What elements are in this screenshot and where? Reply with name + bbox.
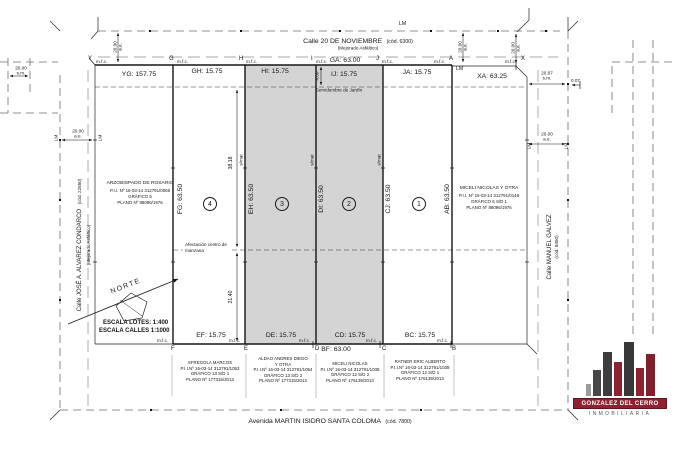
dim-cd: CD: 15.75 <box>335 332 366 340</box>
dim-de: DE: 15.75 <box>266 332 296 340</box>
dim-di: DI: 63.50 <box>318 185 326 213</box>
point-marker-d: m.f.c. <box>299 338 310 343</box>
parcel-south-4-info: RATNER ERIC ALBERTO P.I.I.Nº 16-03-14 31… <box>391 359 450 381</box>
point-marker-i: m.f.c. <box>316 59 327 64</box>
point-e: E <box>244 346 248 353</box>
point-marker-h: m.f.c. <box>246 59 257 64</box>
lot-circle-2: 2 <box>342 197 356 211</box>
afectacion-note-line1: Afectación centro de <box>185 242 227 247</box>
parcel-south-2-info: ALDAO ANDRES DIEGO Y OTRA P.I.I.Nº 16-03… <box>254 356 313 384</box>
logo-building-bar <box>624 342 634 396</box>
point-b: B <box>452 346 456 353</box>
lot-circle-4: 4 <box>203 197 217 211</box>
dim-bf: BF: 63.00 <box>321 346 350 354</box>
logo-building-bar <box>646 354 655 396</box>
logo-building-bar <box>614 362 622 396</box>
point-x: X <box>521 56 525 63</box>
point-j: J <box>376 56 379 63</box>
point-i: I <box>311 56 313 63</box>
point-marker-j: m.f.c. <box>382 59 393 64</box>
point-marker-y: m.f.c. <box>96 59 107 64</box>
dim-ab: AB: 63.50 <box>444 184 452 214</box>
logo-building-bar <box>586 384 591 396</box>
point-marker-b: m.f.c. <box>437 338 448 343</box>
point-marker-c: m.f.c. <box>366 338 377 343</box>
company-logo: GONZALEZ DEL CERRO INMOBILIARIA <box>573 342 667 417</box>
smat-note-cj: s/mat <box>376 154 381 165</box>
dim-gh: GH: 15.75 <box>192 68 223 76</box>
logo-buildings-icon <box>573 342 667 396</box>
logo-subtitle: INMOBILIARIA <box>573 411 667 417</box>
lm-label-left-outer: LM <box>53 135 58 141</box>
lm-label-right-inner: LM <box>526 143 531 149</box>
dim-ef: EF: 15.75 <box>196 332 225 340</box>
dim-servidumbre-depth: 4.00 <box>314 72 319 81</box>
dim-xa: XA: 63.25 <box>477 73 507 81</box>
dim-inner-lower: 21.40 <box>229 291 235 304</box>
lm-label-left-inner: LM <box>97 135 102 141</box>
logo-building-bar <box>593 370 601 396</box>
dim-ga: GA: 63.00 <box>330 57 361 65</box>
point-a: A <box>449 56 453 63</box>
point-marker-e: m.f.c. <box>229 338 240 343</box>
scale-streets: ESCALA CALLES 1:1000 <box>99 328 169 335</box>
servidumbre-note: Servidumbre de Jardín <box>316 87 362 92</box>
dim-yg: YG: 157.75 <box>122 71 156 79</box>
dim-ij: IJ: 15.75 <box>331 71 357 79</box>
parcel-east-info: MICELI NICOLAS Y OTRA P.I.I. Nº 16-03-14… <box>459 186 519 211</box>
point-marker-x: m.f.c. <box>505 59 516 64</box>
survey-plan: Calle 20 DE NOVIEMBRE (cód. 6300) (Mejor… <box>0 0 675 450</box>
parcel-plano: PLANO Nº 177315/2013 <box>181 377 240 383</box>
lm-label-right-outer: LM <box>563 143 568 149</box>
dim-cj: CJ: 63.50 <box>385 184 393 213</box>
dim-suffix: s.m. <box>541 76 553 81</box>
lm-label-corner-a: LM <box>456 67 463 73</box>
street-surface-top: (Mejorado Asfáltico) <box>338 45 379 50</box>
parcel-owner: ALDAO ANDRES DIEGO <box>254 356 313 362</box>
street-name-top-text: Calle 20 DE NOVIEMBRE <box>303 38 382 45</box>
parcel-plano: PLANO Nº 176139/2013 <box>391 376 450 382</box>
logo-building-bar <box>636 368 644 396</box>
dim-inner-upper: 38.18 <box>229 157 235 170</box>
parcel-plano: PLANO Nº 177315/2013 <box>254 378 313 384</box>
scale-lots: ESCALA LOTES: 1:400 <box>103 320 168 327</box>
street-name-left-text: Calle JOSÉ A. ALVAREZ CONDARCO <box>77 209 83 311</box>
street-name-bottom: Avenida MARTIN ISIDRO SANTA COLOMA (cód.… <box>248 410 411 428</box>
point-g: G <box>169 56 174 63</box>
dim-street-width-right-top: 20.87s.m. <box>541 71 553 82</box>
street-code-bottom: (cód. 7800) <box>385 419 411 425</box>
point-h: H <box>239 56 243 63</box>
point-marker-g: m.f.c. <box>177 59 188 64</box>
point-f: F <box>171 346 175 353</box>
smat-note-di: s/mat <box>309 154 314 165</box>
parcel-owner: SFREGOLA MARCOS <box>181 360 240 366</box>
street-name-right: Calle MANUEL GALVEZ (cód. 8450) <box>547 214 559 279</box>
dim-eh: EH: 63.50 <box>248 184 256 214</box>
lm-label-top: LM <box>399 22 406 28</box>
dim-street-width-left: 20.00a.e. <box>72 129 84 140</box>
parcel-owner: RATNER ERIC ALBERTO <box>391 359 450 365</box>
lot-circle-3: 3 <box>275 197 289 211</box>
dim-street-width-right: 20.00a.e. <box>541 132 553 143</box>
smat-note-eh: s/mat <box>238 154 243 165</box>
point-marker-f: m.f.c. <box>157 338 168 343</box>
logo-building-bar <box>603 352 612 396</box>
dim-fg: FG: 63.50 <box>177 184 185 214</box>
dim-suffix: a.e. <box>463 41 468 53</box>
street-name-right-text: Calle MANUEL GALVEZ <box>547 214 554 279</box>
shaded-lots-fill <box>245 65 383 344</box>
dim-suffix: s.m. <box>15 71 27 76</box>
dim-suffix: a.e. <box>72 134 84 139</box>
point-marker-a: m.f.c. <box>434 59 445 64</box>
point-d: D <box>315 346 319 353</box>
street-code-right: (cód. 8450) <box>554 214 559 279</box>
logo-name: GONZALEZ DEL CERRO <box>573 398 667 409</box>
afectacion-note-line2: manzana <box>185 248 204 253</box>
dim-street-width-farleft: 20.00s.m. <box>15 66 27 77</box>
point-y: Y <box>88 56 92 63</box>
dim-hi: HI: 15.75 <box>261 68 289 76</box>
parcel-south-1-info: SFREGOLA MARCOS P.I.I.Nº 16-03-14 312791… <box>181 360 240 382</box>
street-name-left: Calle JOSÉ A. ALVAREZ CONDARCO (cód. 225… <box>68 179 92 312</box>
dim-street-width-topleft: 20.00a.e. <box>113 41 124 53</box>
street-surface-left: (Mejorado Asfáltico) <box>87 179 92 312</box>
street-name-bottom-text: Avenida MARTIN ISIDRO SANTA COLOMA <box>248 418 381 425</box>
parcel-plano: PLANO Nº 88096/1976 <box>459 205 519 211</box>
lot-circle-1: 1 <box>412 197 426 211</box>
dim-street-width-topright1: 20.00a.e. <box>458 41 469 53</box>
parcel-south-3-info: MICELI NICOLAS P.I.I.Nº 16-03-14 312791/… <box>321 361 380 383</box>
parcel-plano: PLANO Nº 176139/2013 <box>321 378 380 384</box>
parcel-pii: P.I.I.Nº 16-03-14 312791/1054 <box>254 367 313 373</box>
street-code-left: (cód. 22550) <box>77 179 82 205</box>
parcel-owner: ARZOBISPADO DE ROSARIO <box>106 181 173 188</box>
dim-bc: BC: 15.75 <box>405 332 435 340</box>
dim-ja: JA: 15.75 <box>403 69 432 77</box>
dim-suffix: a.e. <box>541 137 553 142</box>
parcel-owner: MICELI NICOLAS Y OTRA <box>459 186 519 193</box>
dim-street-width-topright2: 20.00a.e. <box>511 42 522 54</box>
parcel-plano: PLANO Nº 88096/1976 <box>106 200 173 206</box>
dim-suffix: a.e. <box>118 41 123 53</box>
parcel-west-info: ARZOBISPADO DE ROSARIO P.I.I. Nº 16-03-1… <box>106 181 173 206</box>
point-c: C <box>382 346 386 353</box>
dim-offset-right: 0.07 <box>571 78 580 83</box>
dim-suffix: a.e. <box>516 42 521 54</box>
street-code-top: (cód. 6300) <box>387 39 413 45</box>
